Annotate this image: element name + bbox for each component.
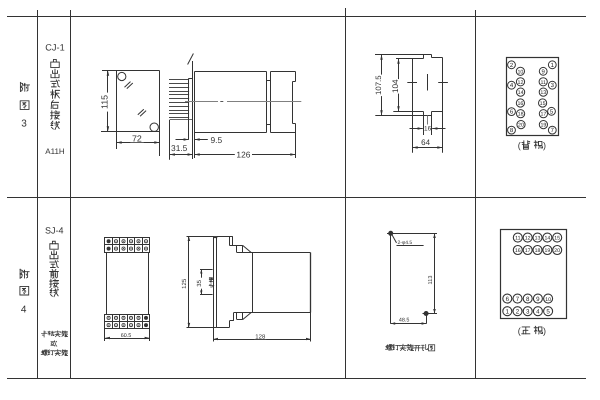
svg-text:14: 14 bbox=[544, 236, 550, 242]
svg-text:16: 16 bbox=[424, 126, 432, 133]
svg-text:1: 1 bbox=[506, 308, 510, 315]
svg-text:48.5: 48.5 bbox=[399, 318, 410, 324]
svg-text:12: 12 bbox=[518, 80, 524, 86]
svg-text:7: 7 bbox=[516, 296, 520, 303]
svg-text:125: 125 bbox=[181, 278, 188, 289]
svg-text:15: 15 bbox=[540, 101, 546, 107]
svg-text:18: 18 bbox=[518, 112, 524, 118]
svg-text:A11H: A11H bbox=[45, 147, 65, 156]
svg-text:16: 16 bbox=[515, 248, 521, 254]
svg-text:5: 5 bbox=[546, 308, 550, 315]
svg-text:11: 11 bbox=[540, 80, 546, 86]
svg-text:): ) bbox=[543, 326, 546, 336]
svg-text:8: 8 bbox=[526, 296, 530, 303]
svg-text:13: 13 bbox=[535, 236, 541, 242]
svg-text:4: 4 bbox=[21, 304, 27, 315]
svg-text:13: 13 bbox=[540, 90, 546, 96]
svg-text:10: 10 bbox=[545, 297, 551, 303]
svg-text:126: 126 bbox=[236, 150, 250, 160]
svg-text:60.5: 60.5 bbox=[121, 333, 132, 339]
svg-text:72: 72 bbox=[132, 134, 142, 144]
svg-text:64: 64 bbox=[421, 138, 430, 147]
svg-text:3: 3 bbox=[21, 119, 27, 130]
svg-text:6: 6 bbox=[506, 296, 510, 303]
svg-text:15: 15 bbox=[554, 236, 560, 242]
svg-text:2: 2 bbox=[516, 308, 520, 315]
svg-text:113: 113 bbox=[428, 276, 434, 285]
svg-text:19: 19 bbox=[540, 123, 546, 129]
svg-text:SJ-4: SJ-4 bbox=[45, 226, 64, 236]
svg-text:20: 20 bbox=[518, 123, 524, 129]
svg-text:): ) bbox=[543, 140, 546, 150]
svg-text:CJ-1: CJ-1 bbox=[45, 43, 64, 53]
svg-text:31.5: 31.5 bbox=[171, 143, 188, 153]
svg-text:128: 128 bbox=[255, 333, 266, 340]
svg-text:16: 16 bbox=[517, 101, 523, 107]
svg-text:(: ( bbox=[518, 326, 521, 336]
svg-text:35: 35 bbox=[196, 279, 203, 286]
svg-text:3: 3 bbox=[526, 308, 530, 315]
svg-text:18: 18 bbox=[535, 248, 541, 254]
svg-text:17: 17 bbox=[525, 248, 531, 254]
svg-text:115: 115 bbox=[99, 95, 109, 109]
svg-text:20: 20 bbox=[554, 248, 560, 254]
svg-text:107.5: 107.5 bbox=[374, 75, 383, 95]
svg-text:19: 19 bbox=[544, 248, 550, 254]
svg-text:10: 10 bbox=[517, 69, 523, 75]
svg-text:9.5: 9.5 bbox=[211, 135, 223, 145]
svg-text:2-φ4.5: 2-φ4.5 bbox=[398, 240, 413, 246]
svg-text:17: 17 bbox=[540, 112, 546, 118]
svg-text:9: 9 bbox=[536, 296, 540, 303]
svg-text:(: ( bbox=[518, 140, 521, 150]
svg-text:11: 11 bbox=[515, 236, 520, 242]
svg-text:12: 12 bbox=[525, 236, 531, 242]
svg-text:14: 14 bbox=[518, 90, 524, 96]
svg-text:4: 4 bbox=[536, 308, 540, 315]
svg-text:104: 104 bbox=[391, 79, 400, 93]
